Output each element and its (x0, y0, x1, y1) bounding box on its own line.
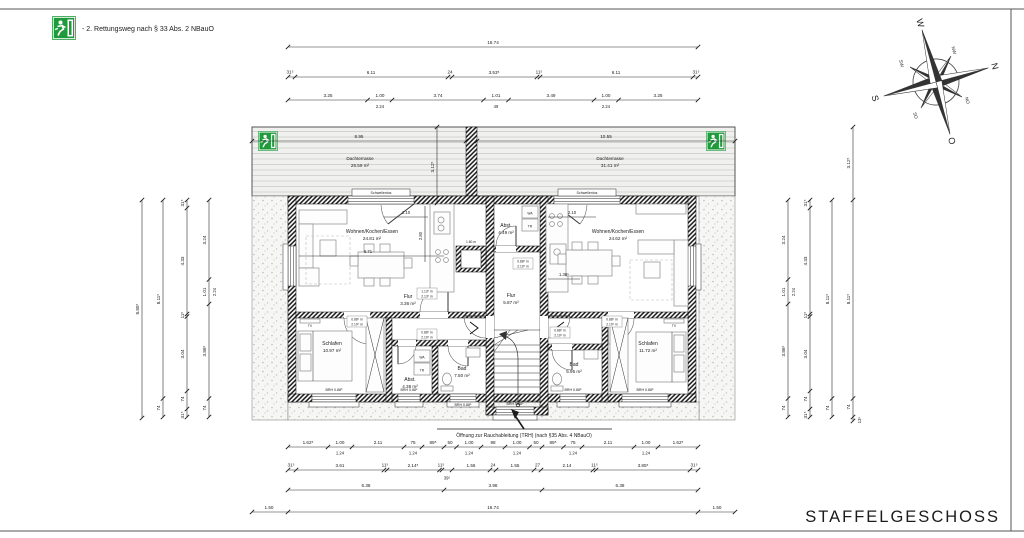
dim-label: 1.36⁵ (559, 272, 569, 277)
dim-label: 2.11 (604, 440, 613, 445)
dim-label: 3.53⁵ (489, 70, 500, 75)
legend-note: - 2. Rettungsweg nach § 33 Abs. 2 NBauO (82, 26, 214, 33)
dim-label: 31⁵ (803, 411, 808, 418)
door-size: 2.10⁵ m (421, 336, 433, 340)
door-size: 0.88⁵ m (517, 260, 529, 264)
door-size: 0.88⁵ m (421, 331, 433, 335)
dim-label: 2.10 (402, 210, 411, 215)
duct-shaft (456, 246, 486, 272)
dim-label: 3.98 (489, 483, 498, 488)
door-size: 2.10⁵ m (517, 265, 529, 269)
compass-east-label: O (946, 136, 957, 145)
dim-label: 75 (410, 440, 416, 445)
dim-label: 31⁵ (287, 463, 294, 468)
dim-label: 11⁵ (438, 463, 445, 468)
room-area: 5.95 m² (566, 369, 582, 374)
dim-label: 11⁵ (536, 70, 543, 75)
dim-label: 8.11⁵ (825, 294, 830, 305)
dim-label: 31⁵ (803, 199, 808, 206)
brh-label: BRH 0.88⁵ (454, 403, 472, 407)
room-name: Abst. (500, 223, 511, 229)
room-area: 10.97 m² (323, 348, 342, 353)
dim-label: 2.80 (418, 231, 423, 240)
dim-label: 2.14 (563, 463, 572, 468)
dim-label: 74 (202, 405, 207, 411)
terrace-name: Dachterrasse (596, 156, 624, 161)
brh-label: BRH 0.88⁵ (636, 388, 654, 392)
architectural-drawing-sheet: - 2. Rettungsweg nach § 33 Abs. 2 NBauO … (0, 0, 1024, 538)
dim-label: 1.00 (642, 440, 651, 445)
dim-label: 50 (447, 440, 453, 445)
room-area: 5.87 m² (503, 300, 519, 305)
dim-label: 11⁵ (803, 312, 808, 319)
dim-label: 11⁵ (591, 463, 598, 468)
dim-label: 3.12⁵ (846, 157, 851, 168)
dim-label: 1.00 (465, 440, 474, 445)
dim-label: 1.00 (376, 93, 385, 98)
dimension-chain-top: 16.74 31⁵ 6.11 24 3.53⁵ 11⁵ 6.11 31⁵ 3.2… (286, 40, 700, 109)
dim-sublabel: 2.24 (602, 104, 611, 109)
threshold-label: Schwellenlos (577, 191, 598, 195)
door-size: 2.13⁵ m (421, 295, 433, 299)
room-name: Abst. (404, 377, 415, 383)
dim-label: 3.49 (547, 93, 556, 98)
roof-terrace (252, 127, 735, 196)
dim-label: 31⁵ (690, 463, 697, 468)
dim-label: 3.86⁵ (781, 345, 786, 356)
dim-label: 89⁵ (549, 440, 556, 445)
dim-label: 1.00 (513, 440, 522, 445)
floor-plan-svg: - 2. Rettungsweg nach § 33 Abs. 2 NBauO … (0, 0, 1024, 538)
dim-label: 3.61 (336, 463, 345, 468)
dim-label: 89⁵ (429, 440, 436, 445)
brh-label: BRH 0.88⁵ (325, 388, 343, 392)
dim-label: 50 (533, 440, 539, 445)
tv-label: TV (308, 324, 313, 328)
room-name: Wohnen/Kochen/Essen (592, 229, 644, 235)
compass-se-label: SO (912, 112, 919, 120)
dim-label: 4.33 (803, 256, 808, 265)
dim-label: 2.14⁵ (408, 463, 419, 468)
dim-sublabel: 1.24 (409, 451, 418, 456)
room-name: Schlafen (322, 341, 342, 347)
dim-label: 3.25 (654, 93, 663, 98)
dim-label: 31⁵ (286, 70, 293, 75)
dim-sublabel: 1.24 (569, 451, 578, 456)
dim-label: 6.38 (616, 483, 625, 488)
dim-label: 3.85⁵ (638, 463, 649, 468)
dim-sublabel: 1.24 (642, 451, 651, 456)
dim-label: 74 (781, 405, 786, 411)
dim-label: 74 (825, 405, 830, 411)
room-area: 3.36 m² (400, 301, 416, 306)
dim-label: 3.04 (180, 349, 185, 358)
dim-label: 6.38 (362, 483, 371, 488)
dim-sublabel: 39⁵ (444, 476, 451, 481)
dim-label: 1.50 (713, 505, 722, 510)
dim-label: 8.85⁵ (135, 303, 140, 314)
dim-sublabel: 1.24 (336, 451, 345, 456)
dim-label: 16.74 (487, 40, 499, 45)
compass-sw-label: SW (898, 59, 905, 68)
compass-west-label: W (914, 18, 926, 29)
dim-label: 6.11 (367, 70, 376, 75)
dim-label: 98 (490, 440, 496, 445)
dim-label: 1.62⁵ (673, 440, 684, 445)
dim-label: 11⁵ (180, 312, 185, 319)
gravel-strip-left (252, 196, 288, 420)
smoke-vent-note: Öffnung zur Rauchableitung (TRH) (nach §… (456, 432, 592, 439)
dimension-chain-left: 8.85⁵ 8.11⁵ 74 31⁵ 4.33 11⁵ 3.04 74 31⁵ … (135, 198, 217, 420)
dim-label: 1.62⁵ (303, 440, 314, 445)
legend: - 2. Rettungsweg nach § 33 Abs. 2 NBauO (52, 16, 214, 40)
room-name: Bad (570, 362, 579, 368)
dim-sublabel: 2.24 (791, 287, 796, 296)
dim-label: 31⁵ (180, 411, 185, 418)
dim-label: 1.00 (602, 93, 611, 98)
dim-label: 24 (490, 463, 496, 468)
dim-label: 31⁵ (692, 70, 699, 75)
emergency-exit-icon (52, 16, 76, 40)
dimension-chain-right: 3.24 1.01 2.24 3.86⁵ 74 31⁵ 4.33 11⁵ 3.0… (781, 125, 862, 423)
dim-label: 31⁵ (180, 199, 185, 206)
dim-label: 74 (156, 405, 161, 411)
room-area: 11.72 m² (639, 348, 657, 353)
dim-label: 1.01 (781, 287, 786, 296)
door-size: 2.10⁵ m (351, 323, 363, 327)
dim-sublabel: 13⁵ (857, 417, 862, 424)
brh-label: BRH 0.88⁵ (564, 388, 582, 392)
dim-sublabel: 1.24 (513, 451, 522, 456)
dim-label: 1.01 (492, 93, 501, 98)
compass-nw-label: NW (951, 46, 958, 55)
room-area: 24.81 m² (363, 236, 382, 241)
door-size: 0.88⁵ m (351, 318, 363, 322)
dim-label: 8.11⁵ (156, 294, 161, 305)
room-name: Flur (507, 293, 516, 299)
door-size: 2.10⁵ m (554, 334, 566, 338)
floor-plan: Wohnen/Kochen/Essen 24.81 m² Wohnen/Koch… (250, 125, 737, 439)
washer-label: WA (527, 212, 533, 216)
dim-label: 4.33 (180, 256, 185, 265)
dim-label: 1.56 (467, 463, 476, 468)
dryer-label: TR (420, 369, 425, 373)
dim-label: 11⁵ (382, 463, 389, 468)
door-size: 0.88⁵ m (606, 318, 618, 322)
dim-label: 3.24 (202, 235, 207, 244)
dim-label: 16.74 (487, 505, 499, 510)
door-size: 2.10⁵ m (606, 323, 618, 327)
room-name: Wohnen/Kochen/Essen (346, 229, 398, 235)
room-area: 7.50 m² (454, 373, 470, 378)
dim-label: 27 (535, 463, 541, 468)
dim-label: 1.01 (202, 287, 207, 296)
dim-label: 8.11⁵ (846, 294, 851, 305)
dim-label: 2.10 (568, 210, 577, 215)
dim-label: 3.86⁵ (202, 345, 207, 356)
terrace-area: 31.41 m² (601, 163, 620, 168)
brh-label: BRH 0.88⁵ (506, 402, 524, 406)
dim-label: 74 (803, 396, 808, 402)
tv-label: TV (672, 324, 677, 328)
compass-ne-label: NO (964, 97, 971, 105)
room-name: Bad (458, 366, 467, 372)
dim-label: 1.00 (336, 440, 345, 445)
threshold-label: Schwellenlos (371, 191, 392, 195)
drawing-title: STAFFELGESCHOSS (805, 508, 1000, 526)
compass-rose-icon: N O S W NO SO SW NW (853, 2, 1016, 162)
door-size: 1.13⁵ m (421, 290, 433, 294)
dimension-chain-bottom: 1.62⁵ 1.00 2.11 75 89⁵ 50 1.00 98 1.00 5… (250, 440, 737, 514)
dim-label: 24 (447, 70, 453, 75)
brh-label: BRH 0.88⁵ (400, 388, 418, 392)
dryer-label: TR (528, 225, 533, 229)
dim-label: 3.74 (434, 93, 443, 98)
washer-label: WA (419, 356, 425, 360)
terrace-area: 26.59 m² (351, 163, 370, 168)
room-name: Schlafen (638, 341, 658, 347)
dim-label: 75 (570, 440, 576, 445)
compass-north-label: N (989, 62, 1000, 71)
gravel-strip-right (699, 196, 735, 420)
room-name: Flur (404, 294, 413, 300)
door-size: 0.88⁵ m (554, 329, 566, 333)
terrace-divider-wall (466, 127, 477, 196)
dim-label: 74 (846, 404, 851, 410)
compass-south-label: S (870, 94, 881, 102)
dim-label: 6.71 (364, 249, 373, 254)
dim-sublabel: 2.24 (212, 287, 217, 296)
room-area: 4.49 m² (498, 230, 514, 235)
dim-label: 10.55 (600, 134, 612, 139)
dim-label: 1.60 m (466, 240, 476, 244)
terrace-name: Dachterrasse (346, 156, 374, 161)
dim-label: 1.55 (511, 463, 520, 468)
dim-sublabel: 1.24 (465, 451, 474, 456)
dim-label: 2.11 (374, 440, 383, 445)
dim-label: 1.50 (265, 505, 274, 510)
dim-label: 74 (180, 396, 185, 402)
dim-label: 3.04 (803, 349, 808, 358)
dim-label: 3.24 (781, 235, 786, 244)
dim-sublabel: 49 (494, 104, 499, 109)
dim-label: 3.12⁵ (430, 161, 435, 172)
room-area: 24.62 m² (609, 236, 628, 241)
dim-label: 6.11 (612, 70, 621, 75)
dim-label: 8.95 (355, 134, 364, 139)
dim-label: 3.25 (324, 93, 333, 98)
dim-sublabel: 2.24 (376, 104, 385, 109)
